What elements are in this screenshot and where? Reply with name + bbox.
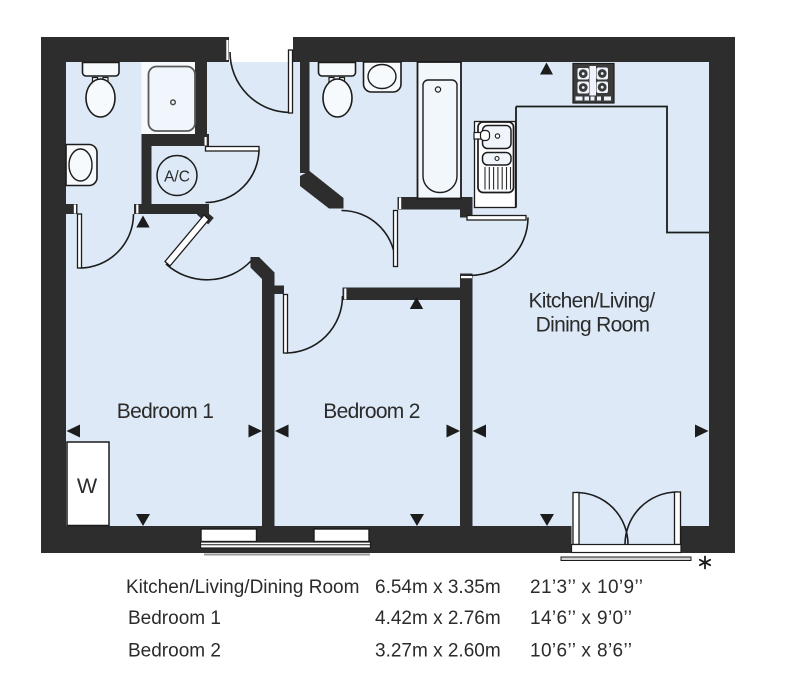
svg-text:Bedroom 1: Bedroom 1 — [128, 608, 221, 629]
svg-text:21’3’’ x 10’9’’: 21’3’’ x 10’9’’ — [530, 577, 643, 598]
svg-text:Bedroom 1: Bedroom 1 — [117, 400, 213, 423]
svg-text:4.42m x 2.76m: 4.42m x 2.76m — [375, 608, 501, 629]
svg-text:Kitchen/Living/: Kitchen/Living/ — [528, 290, 655, 313]
svg-text:Bedroom 2: Bedroom 2 — [128, 641, 221, 662]
svg-text:14’6’’ x 9’0’’: 14’6’’ x 9’0’’ — [530, 608, 632, 629]
svg-text:Dining Room: Dining Room — [536, 314, 650, 337]
svg-text:3.27m x 2.60m: 3.27m x 2.60m — [375, 641, 501, 662]
svg-text:A/C: A/C — [164, 169, 190, 186]
svg-text:W: W — [77, 474, 98, 498]
svg-text:Bedroom 2: Bedroom 2 — [323, 400, 419, 423]
svg-text:6.54m x 3.35m: 6.54m x 3.35m — [375, 577, 501, 598]
svg-text:Kitchen/Living/Dining Room: Kitchen/Living/Dining Room — [126, 577, 359, 598]
svg-text:10’6’’ x 8’6’’: 10’6’’ x 8’6’’ — [530, 641, 632, 662]
